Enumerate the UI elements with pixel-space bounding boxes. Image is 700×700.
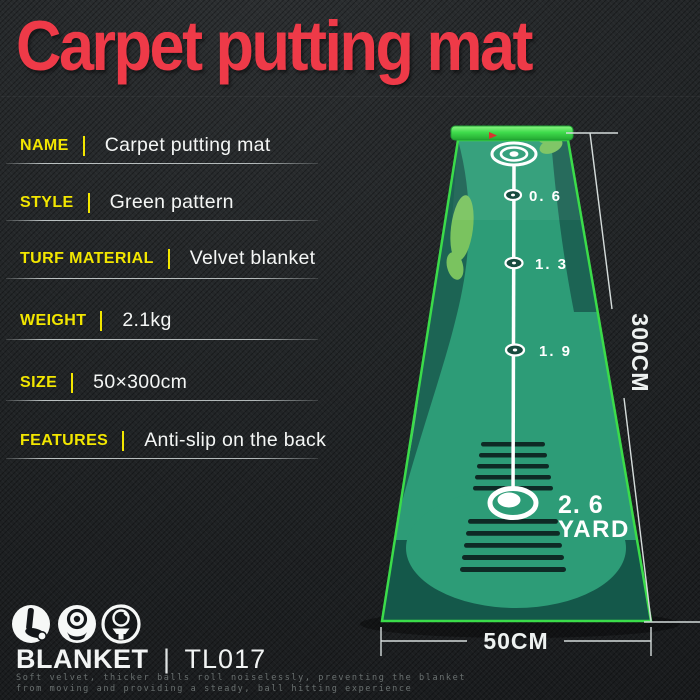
label-divider <box>168 249 170 269</box>
label-divider <box>83 136 85 156</box>
spec-separator <box>6 339 318 340</box>
spec-value: Velvet blanket <box>190 247 316 270</box>
spec-label: TURF MATERIAL <box>20 250 154 268</box>
ball-target-icon <box>58 605 96 643</box>
spec-separator <box>6 220 318 221</box>
spec-separator <box>6 278 318 279</box>
model-number: TL017 <box>185 644 267 674</box>
ball-on-tee-icon <box>103 606 139 642</box>
marker-label-0-6: 0. 6 <box>529 188 562 205</box>
spec-row-weight: WEIGHT 2.1kg <box>20 309 320 332</box>
product-banner: Carpet putting mat <box>0 0 700 700</box>
spec-separator <box>6 400 318 401</box>
spec-row-style: STYLE Green pattern <box>20 191 320 214</box>
spec-value: Green pattern <box>110 191 234 214</box>
marker-label-1-9: 1. 9 <box>539 343 572 360</box>
label-divider <box>122 431 124 451</box>
length-dimension-label: 300CM <box>627 313 653 392</box>
label-divider <box>71 373 73 393</box>
description-line-1: Soft velvet, thicker balls roll noiseles… <box>16 673 466 684</box>
spec-label: STYLE <box>20 194 74 212</box>
spec-row-size: SIZE 50×300cm <box>20 371 320 394</box>
label-divider <box>100 311 102 331</box>
description-line-2: from moving and providing a steady, ball… <box>16 684 466 695</box>
spec-value: Carpet putting mat <box>105 134 271 157</box>
spec-value: 50×300cm <box>93 371 187 394</box>
total-distance-value: 2. 6 <box>558 491 604 519</box>
putter-icon <box>12 605 50 643</box>
label-divider <box>88 193 90 213</box>
center-line <box>513 165 514 502</box>
mat-top-bar <box>451 126 573 140</box>
marker-label-1-3: 1. 3 <box>535 256 568 273</box>
brand-divider: | <box>163 644 170 674</box>
spec-row-turf-material: TURF MATERIAL Velvet blanket <box>20 247 320 270</box>
spec-row-name: NAME Carpet putting mat <box>20 134 320 157</box>
spec-row-features: FEATURES Anti-slip on the back <box>20 429 320 452</box>
spec-label: SIZE <box>20 374 57 392</box>
spec-label: FEATURES <box>20 432 108 450</box>
brand-name: BLANKET <box>16 644 149 674</box>
width-dimension-label: 50CM <box>483 628 548 654</box>
brand-line: BLANKET | TL017 <box>16 644 266 675</box>
mat-body <box>378 135 655 625</box>
spec-separator <box>6 458 318 459</box>
spec-label: WEIGHT <box>20 312 86 330</box>
feature-icons <box>12 605 139 643</box>
putting-mat-illustration: 0. 6 1. 3 1. 9 2. 6 YARD 300CM 50CM <box>0 0 700 700</box>
product-description: Soft velvet, thicker balls roll noiseles… <box>16 673 466 694</box>
spec-value: Anti-slip on the back <box>144 429 326 452</box>
total-distance-unit: YARD <box>558 516 630 543</box>
spec-label: NAME <box>20 137 69 155</box>
hole <box>490 489 536 518</box>
spec-value: 2.1kg <box>122 309 171 332</box>
spec-separator <box>6 163 318 164</box>
